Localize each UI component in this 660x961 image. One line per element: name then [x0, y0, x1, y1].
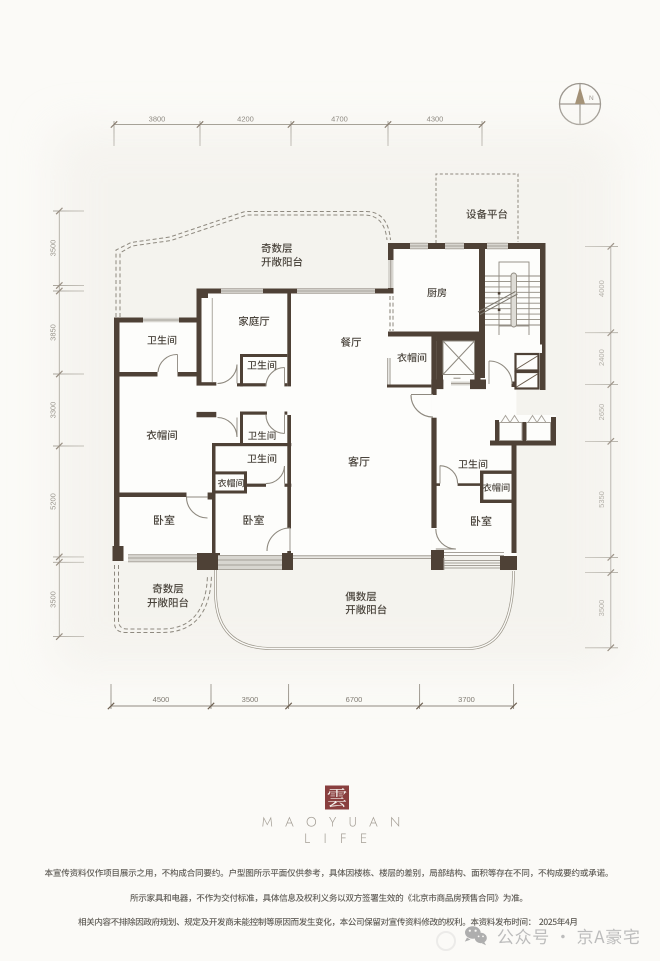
svg-text:3800: 3800	[149, 115, 166, 124]
svg-text:4200: 4200	[237, 115, 254, 124]
svg-text:3500: 3500	[242, 695, 259, 704]
svg-text:6700: 6700	[346, 695, 363, 704]
svg-text:4700: 4700	[331, 115, 348, 124]
svg-text:4300: 4300	[427, 115, 444, 124]
svg-text:N: N	[589, 95, 594, 102]
svg-text:3700: 3700	[458, 695, 475, 704]
svg-text:4500: 4500	[153, 695, 170, 704]
